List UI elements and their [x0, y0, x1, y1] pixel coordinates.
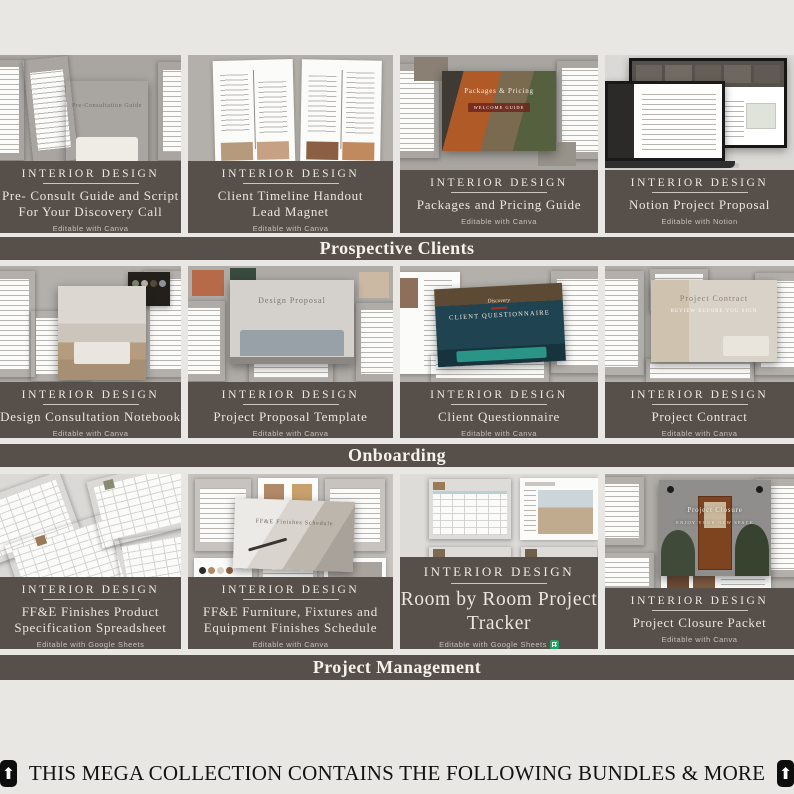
card-title: Client Questionnaire — [438, 409, 560, 425]
proposal-cover-image: Design Proposal — [230, 280, 354, 364]
card-collage — [0, 266, 181, 382]
text-block — [220, 74, 250, 135]
bottom-note: ⬆ THIS MEGA COLLECTION CONTAINS THE FOLL… — [0, 760, 794, 787]
tracker-sheet — [428, 478, 512, 540]
card-subtitle: Editable with Google Sheets — [439, 640, 559, 649]
brand-label: INTERIOR DESIGN — [631, 595, 769, 607]
product-card-project-closure: Project Closure ENJOY YOUR NEW SPACE INT… — [605, 474, 794, 649]
card-footer: INTERIOR DESIGN FF&E Furniture, Fixtures… — [188, 577, 393, 649]
card-footer: INTERIOR DESIGN Notion Project Proposal … — [605, 170, 794, 233]
card-subtitle: Editable with Notion — [661, 217, 737, 226]
cover-subtitle: WELCOME GUIDE — [468, 103, 531, 112]
product-card-client-questionnaire: Discovery CLIENT QUESTIONNAIRE INTERIOR … — [400, 266, 598, 438]
timeline-line — [253, 70, 256, 149]
card-collage: Project Contract REVIEW BEFORE YOU SIGN — [605, 266, 794, 382]
divider — [652, 192, 748, 193]
card-subtitle: Editable with Canva — [253, 224, 329, 233]
pen-shape — [248, 538, 287, 552]
card-title: FF&E Finishes Product Specification Spre… — [14, 604, 166, 636]
card-title: Notion Project Proposal — [629, 197, 770, 213]
schedule-cover-image: FF&E Finishes Schedule — [233, 498, 355, 572]
closure-cover-image: Project Closure ENJOY YOUR NEW SPACE — [659, 480, 771, 576]
photo-thumb — [667, 574, 689, 588]
divider — [451, 404, 547, 405]
brand-label: INTERIOR DESIGN — [424, 564, 575, 580]
sofa-shape — [240, 330, 344, 356]
product-card-notion-proposal: Interior Design Project Proposal — [605, 55, 794, 233]
product-card-client-timeline: INTERIOR DESIGN Client Timeline Handout … — [188, 55, 393, 233]
bottom-note-text: THIS MEGA COLLECTION CONTAINS THE FOLLOW… — [29, 761, 765, 786]
card-footer: INTERIOR DESIGN Project Contract Editabl… — [605, 382, 794, 438]
bundle-row-onboarding: INTERIOR DESIGN Design Consultation Note… — [0, 266, 794, 438]
listing-graphic: Pre-Consultation Guide INTERIOR DESIGN P… — [0, 0, 794, 794]
divider — [243, 599, 339, 600]
cover-title: Project Closure — [687, 506, 742, 514]
notebook-cover-image — [58, 286, 146, 380]
card-collage: Packages & Pricing WELCOME GUIDE — [400, 55, 598, 170]
card-subtitle: Editable with Google Sheets — [37, 640, 145, 649]
tracker-sheet — [520, 546, 598, 557]
card-collage — [188, 55, 393, 161]
section-banner-project-management: Project Management — [0, 655, 794, 680]
card-footer: INTERIOR DESIGN Client Timeline Handout … — [188, 161, 393, 233]
card-footer: INTERIOR DESIGN Packages and Pricing Gui… — [400, 170, 598, 233]
banner-label: Onboarding — [348, 445, 446, 466]
card-title: Room by Room Project Tracker — [400, 588, 598, 636]
product-card-pre-consult-guide: Pre-Consultation Guide INTERIOR DESIGN P… — [0, 55, 181, 233]
bed-photo-shape — [76, 137, 138, 161]
rug-shape — [230, 357, 354, 364]
swatch-dot — [199, 567, 206, 574]
swatch-dot — [226, 567, 233, 574]
questionnaire-cover-image: Discovery CLIENT QUESTIONNAIRE — [434, 283, 566, 368]
card-title: Project Proposal Template — [213, 409, 367, 425]
photo-thumb — [221, 142, 253, 161]
product-card-ffe-spreadsheet: INTERIOR DESIGN FF&E Finishes Product Sp… — [0, 474, 181, 649]
google-sheets-icon — [550, 640, 559, 649]
card-subtitle-text: Editable with Google Sheets — [439, 640, 547, 649]
card-subtitle: Editable with Canva — [253, 640, 329, 649]
paper-sheet — [355, 302, 393, 382]
cover-title: CLIENT QUESTIONNAIRE — [449, 309, 550, 321]
brand-label: INTERIOR DESIGN — [631, 389, 769, 401]
divider — [43, 404, 139, 405]
card-footer: INTERIOR DESIGN Room by Room Project Tra… — [400, 557, 598, 649]
laptop-screen — [608, 84, 722, 158]
card-title: Design Consultation Notebook — [0, 409, 181, 425]
cover-title: Design Proposal — [258, 296, 326, 305]
header-strip — [433, 491, 507, 494]
card-collage: Design Proposal — [188, 266, 393, 382]
photo-thumb — [359, 272, 389, 298]
banner-label: Prospective Clients — [320, 238, 475, 259]
card-collage — [400, 474, 598, 557]
card-collage: Project Closure ENJOY YOUR NEW SPACE — [605, 474, 794, 588]
card-collage: FF&E Finishes Schedule — [188, 474, 393, 577]
paper-sheet — [0, 59, 25, 161]
product-card-room-tracker: INTERIOR DESIGN Room by Room Project Tra… — [400, 474, 598, 649]
paper-sheet — [605, 270, 645, 376]
plant-shape — [661, 530, 695, 576]
photo-thumb — [192, 270, 224, 296]
portrait-photo — [400, 278, 418, 308]
tracker-sheet — [520, 478, 598, 540]
photo-thumb — [433, 482, 445, 490]
photo-thumb — [433, 549, 445, 557]
paper-sheet — [157, 61, 181, 161]
lamp-shape — [667, 486, 674, 493]
shelf-cell — [754, 65, 780, 83]
up-arrow-glyph: ⬆ — [779, 764, 792, 783]
photo-thumb — [342, 142, 374, 161]
swatch-dot — [217, 567, 224, 574]
product-card-project-proposal: Design Proposal INTERIOR DESIGN Project … — [188, 266, 393, 438]
card-title: Client Timeline Handout Lead Magnet — [218, 188, 363, 220]
paper-sheet — [188, 300, 226, 382]
card-subtitle: Editable with Canva — [253, 429, 329, 438]
product-card-packages-pricing: Packages & Pricing WELCOME GUIDE INTERIO… — [400, 55, 598, 233]
text-block — [346, 72, 375, 134]
up-arrow-icon: ⬆ — [0, 760, 17, 787]
swatch-dot — [208, 567, 215, 574]
card-subtitle: Editable with Canva — [461, 429, 537, 438]
section-banner-onboarding: Onboarding — [0, 444, 794, 467]
card-footer: INTERIOR DESIGN Design Consultation Note… — [0, 382, 181, 438]
card-collage: Interior Design Project Proposal — [605, 55, 794, 170]
swatch-dot — [159, 280, 166, 287]
brand-label: INTERIOR DESIGN — [222, 584, 360, 596]
cover-subtitle: ENJOY YOUR NEW SPACE — [676, 520, 754, 525]
divider — [243, 183, 339, 184]
timeline-document — [300, 59, 382, 161]
paper-sheet — [605, 476, 645, 546]
card-footer: INTERIOR DESIGN Pre- Consult Guide and S… — [0, 161, 181, 233]
guide-cover-image: Packages & Pricing WELCOME GUIDE — [442, 71, 556, 151]
bed-shape — [723, 336, 769, 356]
brand-label: INTERIOR DESIGN — [22, 168, 160, 180]
map-thumbnail — [746, 103, 776, 129]
card-footer: INTERIOR DESIGN Project Closure Packet E… — [605, 588, 794, 649]
brand-label: INTERIOR DESIGN — [22, 389, 160, 401]
text-block — [642, 94, 716, 150]
beach-house-photo — [538, 490, 593, 534]
brand-label: INTERIOR DESIGN — [430, 177, 568, 189]
divider — [652, 404, 748, 405]
card-subtitle: Editable with Canva — [662, 635, 738, 644]
text-block — [308, 75, 337, 133]
divider — [243, 404, 339, 405]
card-subtitle: Editable with Canva — [53, 224, 129, 233]
card-title: Pre- Consult Guide and Script For Your D… — [2, 188, 179, 220]
cover-title: Pre-Consultation Guide — [72, 103, 142, 109]
paper-sheet — [605, 552, 655, 588]
brand-label: INTERIOR DESIGN — [222, 389, 360, 401]
cover-title: Packages & Pricing — [464, 87, 534, 95]
card-collage: Pre-Consultation Guide — [0, 55, 181, 161]
timeline-line — [340, 70, 342, 149]
up-arrow-icon: ⬆ — [777, 760, 794, 787]
photo-thumb — [693, 574, 715, 588]
laptop-base — [605, 161, 735, 168]
card-subtitle: Editable with Canva — [461, 217, 537, 226]
tracker-sheet — [428, 546, 512, 557]
divider — [451, 192, 547, 193]
divider — [43, 599, 139, 600]
brand-label: INTERIOR DESIGN — [631, 177, 769, 189]
product-card-ffe-schedule: FF&E Finishes Schedule INTERIOR DESIGN F… — [188, 474, 393, 649]
kitchen-island-shape — [74, 342, 130, 364]
card-title: Project Contract — [651, 409, 747, 425]
timeline-document — [213, 59, 296, 161]
card-title: Project Closure Packet — [633, 615, 767, 631]
bundle-row-prospective-clients: Pre-Consultation Guide INTERIOR DESIGN P… — [0, 55, 794, 233]
text-block — [721, 574, 765, 588]
photo-thumb — [525, 549, 537, 557]
sidebar-dark — [608, 84, 634, 158]
plant-shape — [735, 524, 769, 576]
card-collage — [0, 474, 181, 577]
title-bar — [525, 482, 555, 486]
cover-title: Project Contract — [680, 294, 748, 303]
photo-thumb — [257, 141, 289, 160]
divider — [652, 610, 748, 611]
cover-subtitle: REVIEW BEFORE YOU SIGN — [671, 309, 758, 314]
text-block — [524, 490, 536, 532]
shelf-cell — [724, 65, 750, 83]
photo-thumb — [306, 141, 338, 160]
cover-script-word: Discovery — [487, 297, 510, 304]
card-subtitle: Editable with Canva — [53, 429, 129, 438]
card-footer: INTERIOR DESIGN Client Questionnaire Edi… — [400, 382, 598, 438]
text-block — [258, 81, 287, 137]
lamp-shape — [756, 486, 763, 493]
cover-title: FF&E Finishes Schedule — [256, 519, 334, 528]
swatch-dot — [150, 280, 157, 287]
up-arrow-glyph: ⬆ — [2, 764, 15, 783]
card-footer: INTERIOR DESIGN FF&E Finishes Product Sp… — [0, 577, 181, 649]
bundle-row-project-management: INTERIOR DESIGN FF&E Finishes Product Sp… — [0, 474, 794, 649]
brand-label: INTERIOR DESIGN — [430, 389, 568, 401]
guide-cover-image: Pre-Consultation Guide — [66, 81, 148, 161]
card-title: Packages and Pricing Guide — [417, 197, 581, 213]
bench-shape — [457, 347, 547, 363]
brand-label: INTERIOR DESIGN — [22, 584, 160, 596]
product-card-consultation-notebook: INTERIOR DESIGN Design Consultation Note… — [0, 266, 181, 438]
contract-cover-image: Project Contract REVIEW BEFORE YOU SIGN — [651, 280, 777, 362]
banner-label: Project Management — [313, 657, 481, 678]
laptop — [605, 81, 725, 161]
card-title: FF&E Furniture, Fixtures and Equipment F… — [203, 604, 378, 636]
red-rule — [491, 307, 507, 310]
section-banner-prospective-clients: Prospective Clients — [0, 237, 794, 260]
product-card-project-contract: Project Contract REVIEW BEFORE YOU SIGN … — [605, 266, 794, 438]
brand-label: INTERIOR DESIGN — [222, 168, 360, 180]
card-subtitle: Editable with Canva — [662, 429, 738, 438]
divider — [451, 583, 547, 584]
card-collage: Discovery CLIENT QUESTIONNAIRE — [400, 266, 598, 382]
card-footer: INTERIOR DESIGN Project Proposal Templat… — [188, 382, 393, 438]
divider — [43, 183, 139, 184]
